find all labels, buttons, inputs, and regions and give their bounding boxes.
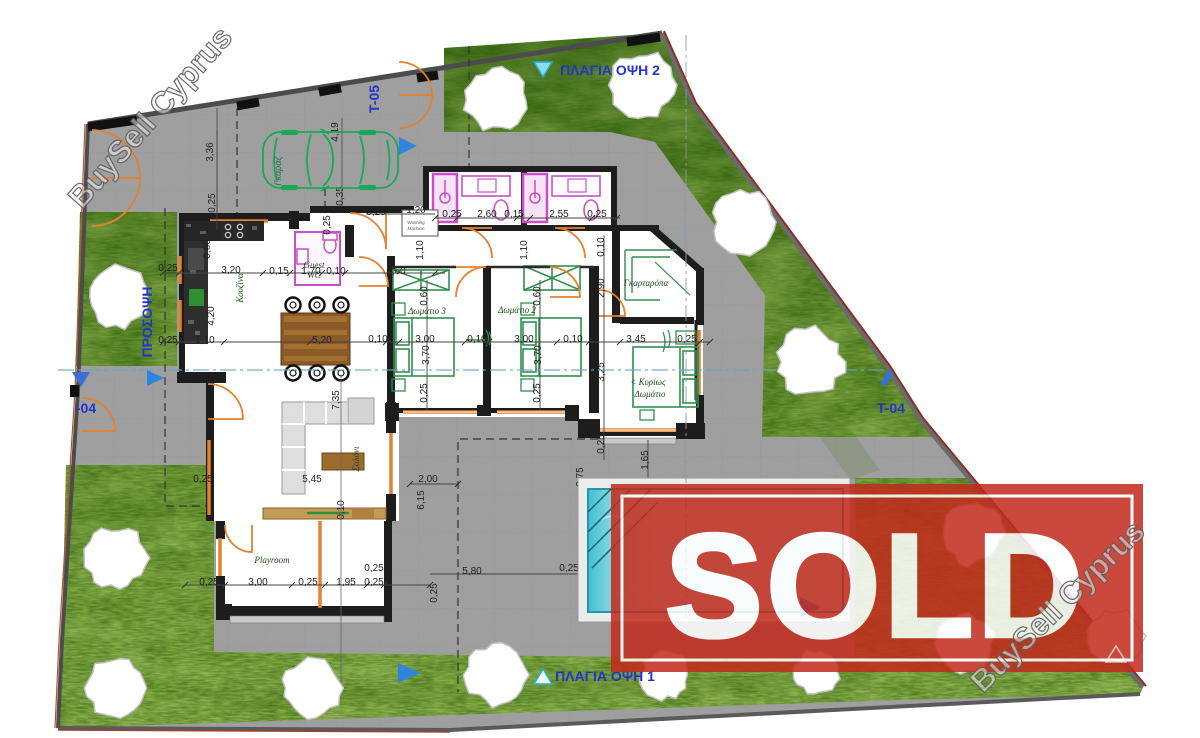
svg-text:Δωμάτιο: Δωμάτιο: [633, 389, 666, 399]
svg-text:3,00: 3,00: [415, 334, 435, 345]
svg-text:Δωμάτιο 2: Δωμάτιο 2: [497, 305, 536, 315]
svg-text:1,95: 1,95: [336, 577, 356, 588]
svg-text:0,15: 0,15: [269, 266, 289, 277]
svg-text:Γκαρταρόπα: Γκαρταρόπα: [623, 278, 669, 288]
svg-text:0,25: 0,25: [364, 563, 384, 574]
svg-text:4,20: 4,20: [206, 306, 217, 326]
svg-text:1,65: 1,65: [640, 450, 651, 470]
svg-text:6,15: 6,15: [416, 490, 427, 510]
svg-text:0,25: 0,25: [364, 577, 384, 588]
svg-text:7,35: 7,35: [331, 390, 342, 410]
svg-text:0,10: 0,10: [563, 334, 583, 345]
svg-text:1,10: 1,10: [415, 240, 426, 260]
svg-text:0,10: 0,10: [326, 266, 346, 277]
svg-text:Machine: Machine: [407, 226, 425, 231]
svg-text:2,90: 2,90: [596, 278, 607, 298]
svg-text:0,10: 0,10: [467, 334, 487, 345]
svg-text:3,45: 3,45: [626, 334, 646, 345]
svg-text:Σαλόνι: Σαλόνι: [351, 446, 361, 472]
svg-text:Δωμάτιο 3: Δωμάτιο 3: [407, 306, 446, 316]
svg-text:5,80: 5,80: [462, 566, 482, 577]
svg-text:1,10: 1,10: [519, 240, 530, 260]
svg-text:ΠΛΑΓΙΑ ΟΨΗ 2: ΠΛΑΓΙΑ ΟΨΗ 2: [560, 62, 660, 78]
svg-text:0,25: 0,25: [193, 474, 213, 485]
svg-text:1,10: 1,10: [195, 335, 215, 346]
svg-text:0,10: 0,10: [368, 334, 388, 345]
svg-text:1,20: 1,20: [406, 205, 426, 216]
svg-text:-04: -04: [76, 400, 96, 416]
svg-text:3,00: 3,00: [514, 334, 534, 345]
svg-text:0,15: 0,15: [504, 209, 524, 220]
svg-text:Playroom: Playroom: [253, 555, 290, 565]
svg-text:< Κυρίως: < Κυρίως: [630, 377, 666, 387]
svg-text:Washing: Washing: [407, 220, 425, 225]
svg-text:0,25: 0,25: [322, 215, 333, 235]
svg-text:0,10: 0,10: [336, 500, 347, 520]
svg-text:2,60: 2,60: [386, 266, 406, 277]
svg-text:3,00: 3,00: [248, 577, 268, 588]
svg-text:5,45: 5,45: [302, 474, 322, 485]
svg-text:3,36: 3,36: [205, 142, 216, 162]
svg-text:5,20: 5,20: [312, 335, 332, 346]
svg-text:0,25: 0,25: [158, 335, 178, 346]
svg-text:0,25: 0,25: [677, 334, 697, 345]
svg-text:0,25: 0,25: [532, 383, 543, 403]
svg-text:0,25: 0,25: [596, 434, 607, 454]
svg-text:0,25: 0,25: [559, 563, 579, 574]
svg-text:2,60: 2,60: [477, 209, 497, 220]
svg-text:0,25: 0,25: [207, 193, 218, 213]
svg-text:0,60: 0,60: [532, 286, 543, 306]
svg-text:T-04: T-04: [877, 400, 905, 416]
svg-text:0,25: 0,25: [587, 209, 607, 220]
svg-text:0,25: 0,25: [442, 209, 462, 220]
svg-text:3,70: 3,70: [533, 345, 544, 365]
svg-text:0,25: 0,25: [298, 577, 318, 588]
svg-text:T-05: T-05: [366, 85, 382, 113]
svg-text:3,70: 3,70: [421, 345, 432, 365]
svg-text:Γκαράζ: Γκαράζ: [273, 156, 283, 186]
svg-text:0,60: 0,60: [419, 286, 430, 306]
svg-text:0,25: 0,25: [419, 383, 430, 403]
svg-text:1,70: 1,70: [301, 266, 321, 277]
svg-text:2,00: 2,00: [418, 474, 438, 485]
svg-text:0,25: 0,25: [366, 207, 386, 218]
svg-text:0,25: 0,25: [429, 583, 440, 603]
svg-text:Κουζίνα: Κουζίνα: [235, 273, 245, 304]
svg-text:ΠΡΟΣΟΨΗ: ΠΡΟΣΟΨΗ: [139, 286, 155, 357]
svg-text:0,10: 0,10: [596, 237, 607, 257]
svg-text:2,55: 2,55: [549, 209, 569, 220]
svg-text:3,25: 3,25: [596, 362, 607, 382]
svg-text:0,25: 0,25: [199, 577, 219, 588]
svg-text:0,25: 0,25: [158, 263, 178, 274]
svg-text:0,60: 0,60: [202, 239, 213, 259]
